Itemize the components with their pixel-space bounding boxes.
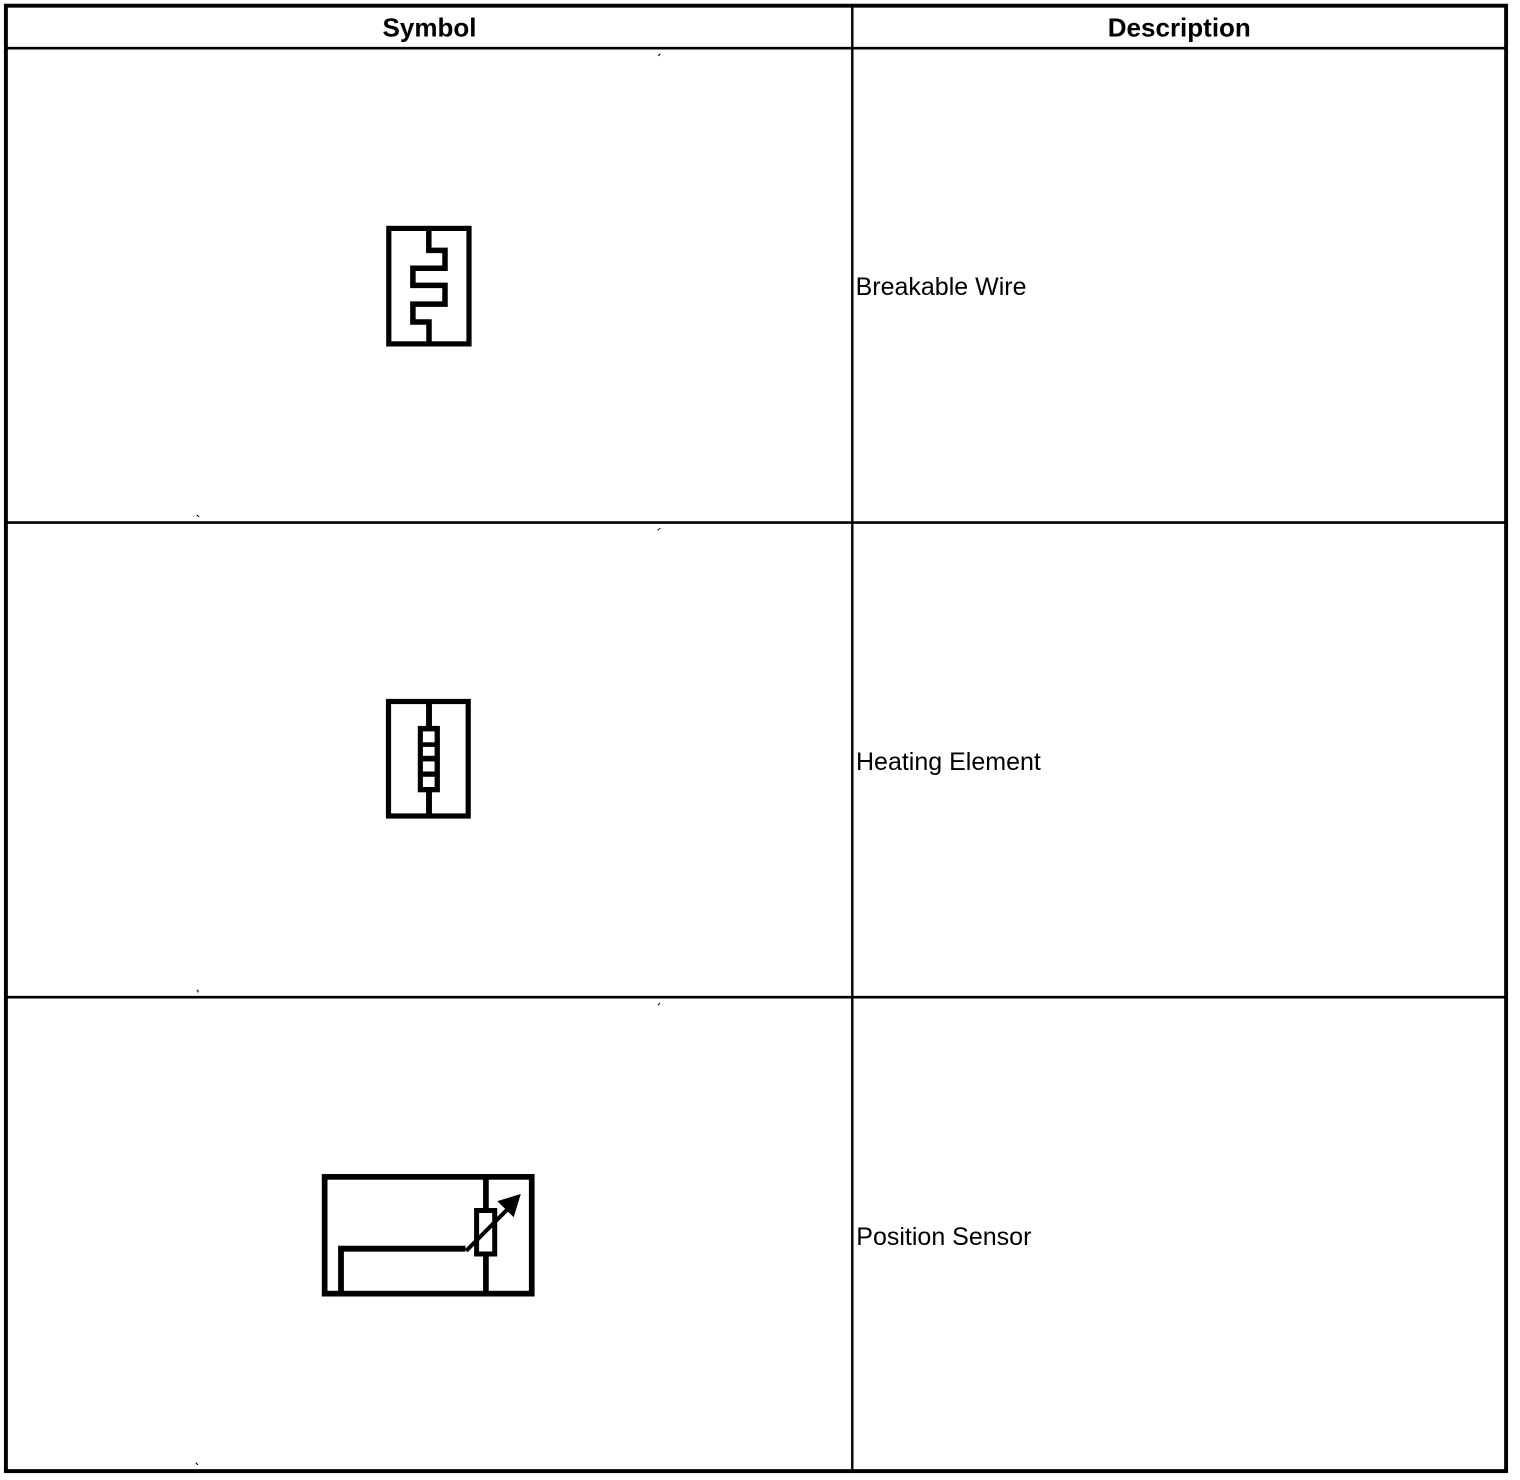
svg-text:Position Sensor: Position Sensor: [856, 1223, 1031, 1251]
svg-text:Description: Description: [1108, 13, 1251, 43]
svg-text:Breakable Wire: Breakable Wire: [856, 273, 1027, 301]
svg-text:Symbol: Symbol: [383, 13, 477, 43]
svg-text:Heating Element: Heating Element: [856, 748, 1041, 776]
